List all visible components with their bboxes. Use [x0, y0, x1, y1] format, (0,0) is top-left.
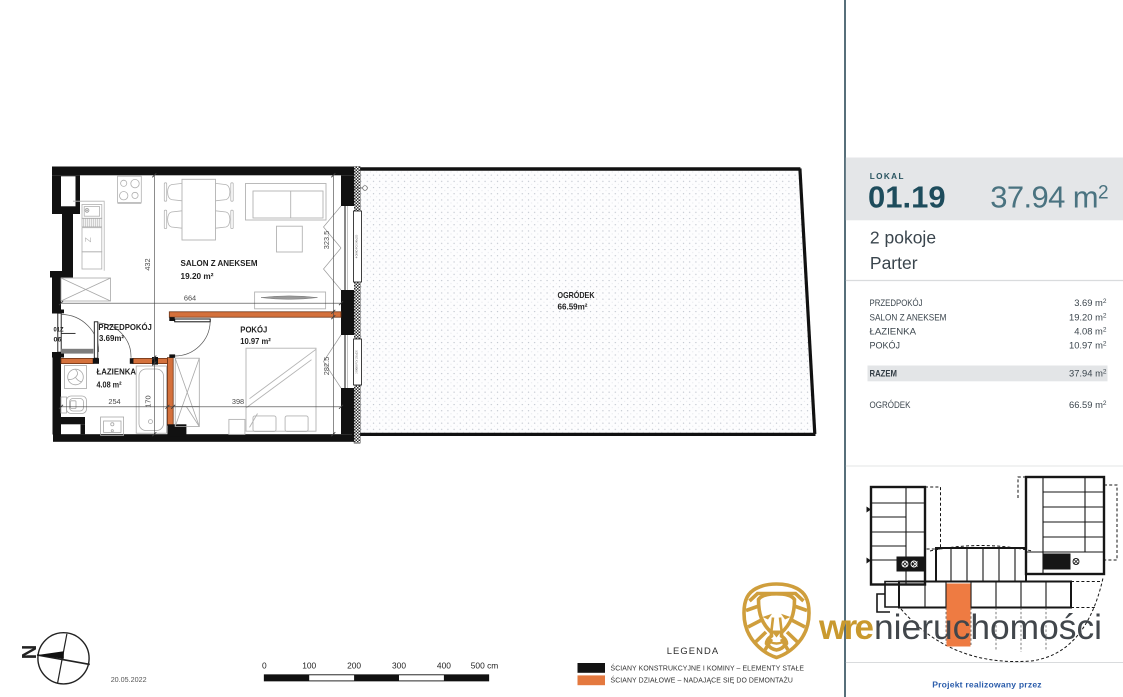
svg-text:Z: Z — [83, 237, 93, 242]
svg-text:100: 100 — [302, 660, 316, 670]
svg-text:19.20 m2: 19.20 m2 — [1069, 311, 1107, 322]
svg-text:254: 254 — [108, 397, 120, 406]
svg-text:2 pokoje: 2 pokoje — [870, 228, 936, 248]
svg-text:432: 432 — [143, 258, 152, 270]
svg-text:POKÓJ: POKÓJ — [870, 340, 901, 351]
svg-text:398: 398 — [232, 397, 244, 406]
svg-text:SALON Z ANEKSEM: SALON Z ANEKSEM — [181, 258, 258, 268]
svg-text:3 OKNO PCV 150x230: 3 OKNO PCV 150x230 — [357, 350, 359, 374]
svg-text:200: 200 — [347, 660, 361, 670]
svg-text:0: 0 — [262, 660, 267, 670]
svg-text:ŁAZIENKA: ŁAZIENKA — [870, 325, 917, 336]
svg-text:RAZEM: RAZEM — [870, 368, 898, 379]
svg-text:500 cm: 500 cm — [471, 660, 498, 670]
svg-text:ŚCIANY DZIAŁOWE – NADAJĄCE SIĘ: ŚCIANY DZIAŁOWE – NADAJĄCE SIĘ DO DEMONT… — [611, 676, 793, 685]
svg-text:01.19: 01.19 — [868, 180, 946, 215]
svg-text:19.20 m²: 19.20 m² — [181, 271, 214, 281]
svg-text:3.69 m2: 3.69 m2 — [1074, 297, 1107, 308]
svg-text:66.59m²: 66.59m² — [558, 303, 588, 312]
svg-text:4.08 m2: 4.08 m2 — [1074, 325, 1107, 336]
svg-text:ŚCIANY KONSTRUKCYJNE I KOMINY: ŚCIANY KONSTRUKCYJNE I KOMINY – ELEMENTY… — [611, 663, 805, 672]
svg-text:4 OKNO PCV 240x230: 4 OKNO PCV 240x230 — [357, 234, 359, 258]
svg-text:4.08 m²: 4.08 m² — [97, 379, 122, 389]
svg-text:37.94 m2: 37.94 m2 — [1069, 368, 1107, 379]
svg-text:282.5: 282.5 — [322, 357, 331, 376]
svg-text:OGRÓDEK: OGRÓDEK — [870, 399, 912, 410]
svg-text:OGRÓDEK: OGRÓDEK — [558, 289, 595, 300]
svg-text:400: 400 — [437, 660, 451, 670]
svg-text:20.05.2022: 20.05.2022 — [111, 675, 147, 684]
svg-text:PRZEDPOKÓJ: PRZEDPOKÓJ — [870, 297, 923, 308]
svg-text:Parter: Parter — [870, 253, 918, 273]
svg-text:06: 06 — [54, 336, 62, 343]
svg-text:POKÓJ: POKÓJ — [240, 324, 267, 335]
svg-text:323.5: 323.5 — [322, 231, 331, 250]
svg-text:ŁAZIENKA: ŁAZIENKA — [97, 367, 137, 377]
svg-text:wre: wre — [818, 608, 874, 647]
svg-text:3.69m²: 3.69m² — [99, 333, 124, 343]
svg-text:10.97 m²: 10.97 m² — [240, 336, 271, 346]
svg-text:N: N — [17, 645, 39, 659]
svg-text:664: 664 — [184, 294, 196, 303]
svg-text:Projekt realizowany przez: Projekt realizowany przez — [932, 680, 1042, 690]
svg-text:300: 300 — [392, 660, 406, 670]
svg-text:LEGENDA: LEGENDA — [667, 645, 720, 656]
svg-text:66.59 m2: 66.59 m2 — [1069, 399, 1107, 410]
svg-text:01Z: 01Z — [54, 326, 64, 333]
svg-text:170: 170 — [144, 395, 153, 407]
svg-text:SALON Z ANEKSEM: SALON Z ANEKSEM — [870, 311, 947, 322]
svg-text:37.94 m2: 37.94 m2 — [990, 180, 1108, 215]
svg-text:PRZEDPOKÓJ: PRZEDPOKÓJ — [98, 321, 152, 332]
svg-text:nieruchomości: nieruchomości — [874, 608, 1102, 647]
svg-text:10.97 m2: 10.97 m2 — [1069, 340, 1107, 351]
